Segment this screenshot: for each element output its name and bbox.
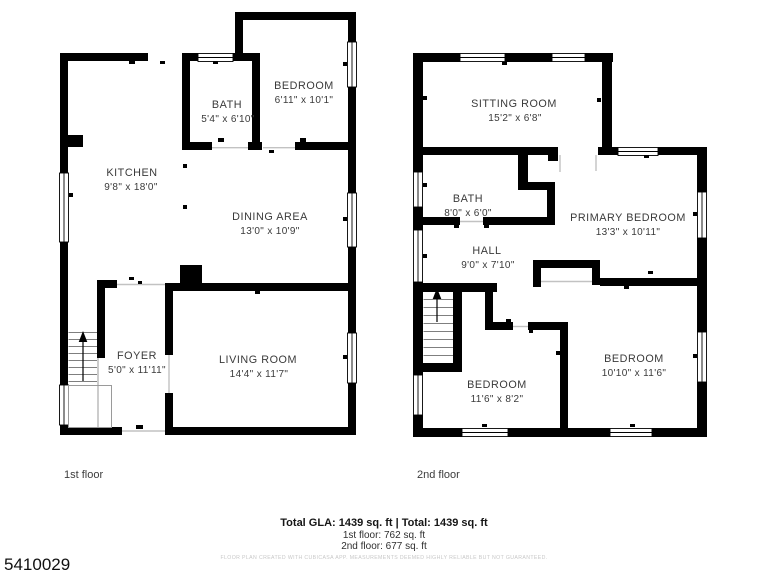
area-summary: Total GLA: 1439 sq. ft | Total: 1439 sq.… — [220, 517, 547, 561]
window-icon — [60, 173, 69, 242]
window-icon — [348, 193, 357, 247]
second-floor-plan: SITTING ROOM 15'2" x 6'8" BATH 8'0" x 6'… — [413, 53, 707, 481]
room-label-bedroom-2f-left: BEDROOM — [467, 379, 527, 391]
window-icon — [698, 332, 707, 382]
total-gla-line: Total GLA: 1439 sq. ft | Total: 1439 sq.… — [280, 517, 488, 529]
window-icon — [60, 385, 69, 425]
room-label-dining-area: DINING AREA — [232, 211, 308, 223]
window-icon — [414, 230, 423, 282]
room-dims-hall: 9'0" x 7'10" — [461, 260, 515, 271]
room-dims-primary-bedroom: 13'3" x 10'11" — [596, 227, 661, 238]
second-floor-area-line: 2nd floor: 677 sq. ft — [341, 541, 427, 552]
window-icon — [198, 54, 233, 62]
room-label-bath-2f: BATH — [453, 193, 483, 205]
window-icon — [552, 54, 585, 62]
window-icon — [698, 192, 707, 238]
room-label-sitting-room: SITTING ROOM — [471, 98, 557, 110]
first-floor-area-line: 1st floor: 762 sq. ft — [343, 530, 425, 541]
room-dims-bedroom-2f-left: 11'6" x 8'2" — [471, 394, 524, 405]
stair-landing-outline — [69, 386, 112, 428]
disclaimer-text: FLOOR PLAN CREATED WITH CUBICASA APP. ME… — [220, 555, 547, 561]
second-floor-caption: 2nd floor — [417, 469, 460, 481]
room-dims-bath-2f: 8'0" x 6'0" — [444, 208, 492, 219]
room-label-bath-1f: BATH — [212, 99, 242, 111]
room-label-foyer: FOYER — [117, 350, 157, 362]
room-dims-dining-area: 13'0" x 10'9" — [240, 226, 299, 237]
room-dims-sitting-room: 15'2" x 6'8" — [488, 113, 542, 124]
room-label-primary-bedroom: PRIMARY BEDROOM — [570, 212, 686, 224]
first-floor-caption: 1st floor — [64, 469, 103, 481]
window-icon — [414, 172, 423, 207]
window-icon — [460, 54, 505, 62]
room-label-living-room: LIVING ROOM — [219, 354, 297, 366]
listing-id: 5410029 — [4, 555, 70, 574]
room-label-bedroom-1f: BEDROOM — [274, 80, 334, 92]
floor-plan-image: BEDROOM 6'11" x 10'1" BATH 5'4" x 6'10" … — [0, 0, 768, 576]
room-dims-kitchen: 9'8" x 18'0" — [104, 182, 158, 193]
room-dims-living-room: 14'4" x 11'7" — [230, 369, 289, 380]
room-dims-foyer: 5'0" x 11'11" — [108, 365, 166, 376]
window-icon — [618, 148, 658, 156]
window-icon — [414, 375, 423, 415]
room-label-kitchen: KITCHEN — [106, 167, 157, 179]
room-dims-bedroom-1f: 6'11" x 10'1" — [275, 95, 334, 106]
second-floor-walls — [413, 53, 707, 437]
first-floor-plan: BEDROOM 6'11" x 10'1" BATH 5'4" x 6'10" … — [60, 12, 357, 481]
window-icon — [348, 42, 357, 87]
room-dims-bath-1f: 5'4" x 6'10" — [201, 114, 255, 125]
window-icon — [462, 429, 508, 437]
room-label-bedroom-2f-right: BEDROOM — [604, 353, 664, 365]
first-floor-walls — [60, 12, 356, 435]
window-icon — [610, 429, 652, 437]
floor-plan-page: BEDROOM 6'11" x 10'1" BATH 5'4" x 6'10" … — [0, 0, 768, 576]
room-label-hall: HALL — [472, 245, 501, 257]
second-floor-stairs-icon — [424, 288, 454, 356]
room-dims-bedroom-2f-right: 10'10" x 11'6" — [602, 368, 667, 379]
first-floor-stairs-icon — [69, 331, 112, 428]
window-icon — [348, 333, 357, 383]
